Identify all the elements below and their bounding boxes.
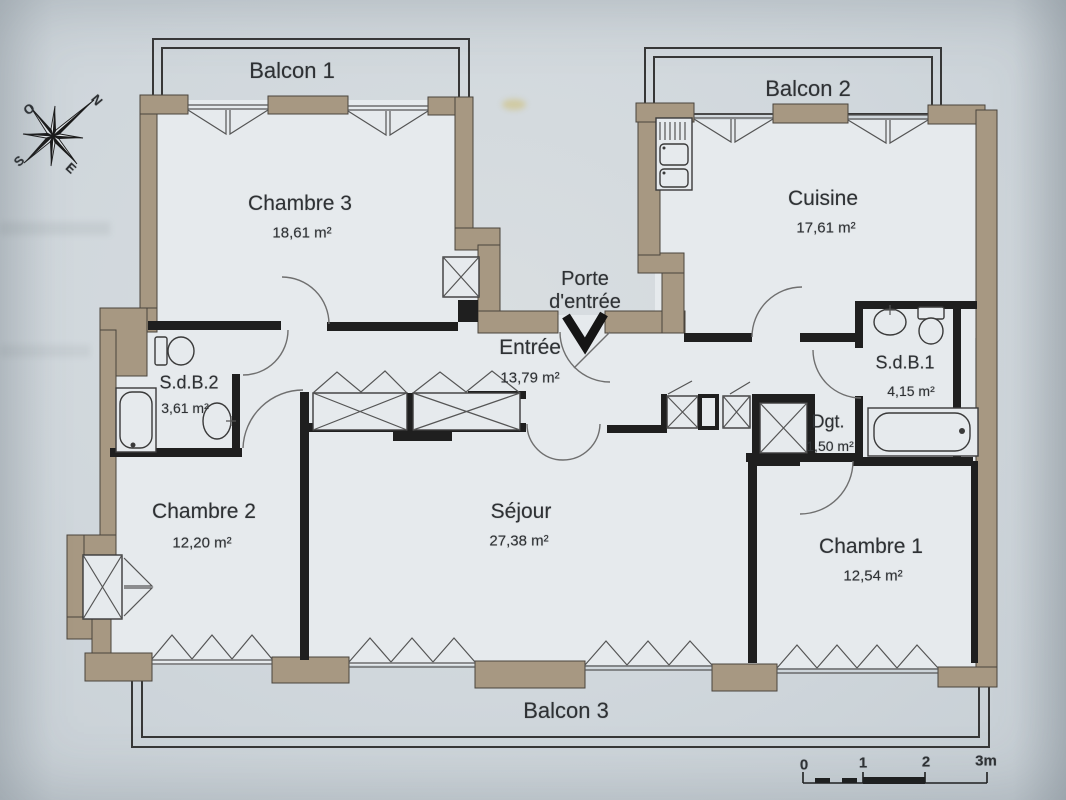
entree-name: Entrée <box>499 336 561 360</box>
balcony2-label: Balcon 2 <box>765 76 851 102</box>
sdb1-bathtub <box>868 408 978 456</box>
scale-bar <box>803 772 987 784</box>
scale-tick-3: 3m <box>975 753 997 770</box>
sdb2-area: 3,61 m² <box>161 400 208 416</box>
scale-tick-2: 2 <box>922 754 930 771</box>
floor-plan-drawing <box>0 0 1066 800</box>
sdb1-area: 4,15 m² <box>887 383 934 399</box>
sdb2-bathtub <box>116 388 156 452</box>
scale-tick-0: 0 <box>800 757 808 774</box>
kitchen-sink <box>656 118 692 190</box>
niche-window <box>443 257 479 297</box>
sdb1-toilet <box>918 307 944 344</box>
entrance-door-label: Porte d'entrée <box>535 268 635 314</box>
chambre1-area: 12,54 m² <box>843 568 902 585</box>
chambre2-area: 12,20 m² <box>172 535 231 552</box>
sejour-area: 27,38 m² <box>489 533 548 550</box>
floor-plan-photo: Balcon 1 Balcon 2 Balcon 3 Chambre 3 18,… <box>0 0 1066 800</box>
duct-shaft <box>700 396 717 428</box>
sejour-name: Séjour <box>491 500 552 524</box>
balcony3-label: Balcon 3 <box>523 698 609 724</box>
cuisine-name: Cuisine <box>788 187 858 211</box>
sdb2-name: S.d.B.2 <box>159 373 218 394</box>
chambre3-name: Chambre 3 <box>248 192 352 216</box>
cuisine-area: 17,61 m² <box>796 220 855 237</box>
balcony1-label: Balcon 1 <box>249 58 335 84</box>
chambre1-name: Chambre 1 <box>819 535 923 559</box>
scale-tick-1: 1 <box>859 755 867 772</box>
sdb1-name: S.d.B.1 <box>875 353 934 374</box>
sdb2-toilet <box>155 337 194 365</box>
entree-area: 13,79 m² <box>500 370 559 387</box>
chambre2-name: Chambre 2 <box>152 500 256 524</box>
dgt-area: 1,50 m² <box>806 438 853 454</box>
chambre3-area: 18,61 m² <box>272 225 331 242</box>
dgt-name: Dgt. <box>811 412 844 433</box>
